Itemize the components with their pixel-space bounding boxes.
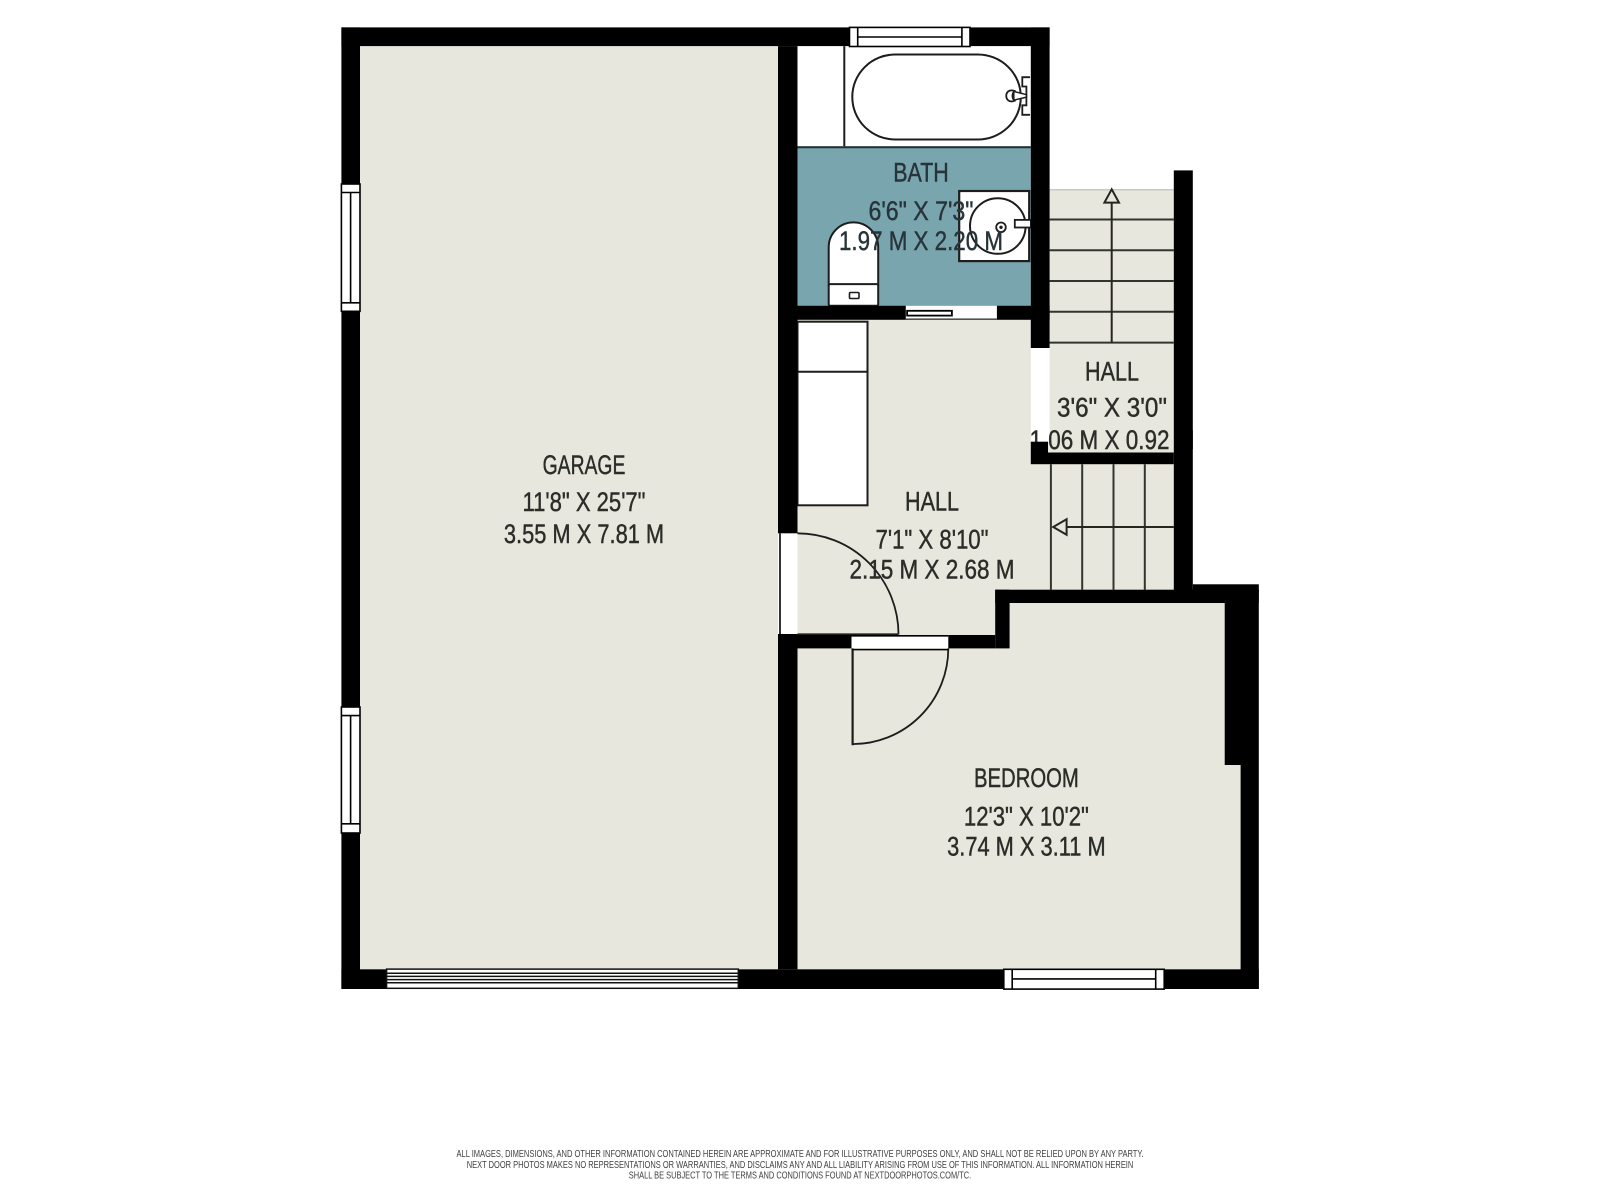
svg-text:SHALL BE SUBJECT TO THE TERMS: SHALL BE SUBJECT TO THE TERMS AND CONDIT… [629,1171,972,1182]
svg-text:3'6" X 3'0": 3'6" X 3'0" [1057,392,1167,422]
svg-text:3.55 M X 7.81 M: 3.55 M X 7.81 M [504,519,664,549]
svg-text:NEXT DOOR PHOTOS MAKES NO REPR: NEXT DOOR PHOTOS MAKES NO REPRESENTATION… [467,1160,1134,1171]
svg-text:11'8" X 25'7": 11'8" X 25'7" [523,487,646,517]
svg-text:ALL IMAGES, DIMENSIONS, AND OT: ALL IMAGES, DIMENSIONS, AND OTHER INFORM… [457,1149,1144,1160]
svg-text:GARAGE: GARAGE [543,450,626,480]
svg-text:HALL: HALL [905,487,959,517]
svg-text:1.97 M X 2.20 M: 1.97 M X 2.20 M [839,226,1003,256]
svg-text:7'1" X 8'10": 7'1" X 8'10" [876,524,989,554]
svg-text:BEDROOM: BEDROOM [974,763,1079,793]
svg-text:12'3" X 10'2": 12'3" X 10'2" [964,801,1089,831]
svg-text:1.06 M X 0.92 M: 1.06 M X 0.92 M [1030,425,1195,455]
svg-text:HALL: HALL [1085,356,1139,386]
svg-text:2.15 M X 2.68 M: 2.15 M X 2.68 M [850,555,1015,585]
svg-text:6'6" X 7'3": 6'6" X 7'3" [869,196,974,226]
svg-text:3.74 M X 3.11 M: 3.74 M X 3.11 M [947,831,1106,861]
svg-text:BATH: BATH [893,157,949,187]
